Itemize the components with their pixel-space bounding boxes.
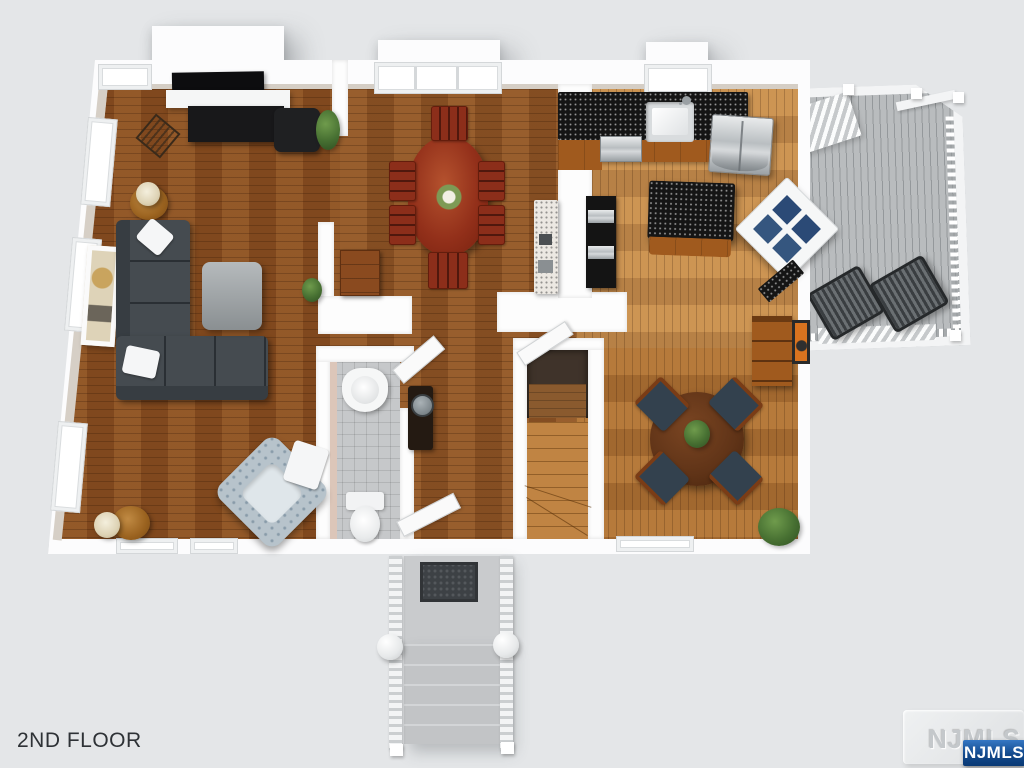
dining-chair-south [428, 252, 468, 289]
rail-post-cap-right [501, 742, 514, 754]
counter-item-1 [539, 234, 552, 245]
hutch-pane-3 [753, 214, 783, 244]
bathroom-wall-top [316, 346, 414, 362]
kitchen-cabinet-left-leg [558, 140, 602, 170]
hutch-pane-4 [772, 233, 802, 263]
island-base [649, 237, 732, 258]
dining-chair-west-1 [389, 161, 416, 201]
divider-wall-horizontal [318, 296, 412, 334]
toilet-bowl [350, 506, 380, 542]
dining-chair-east-2 [478, 205, 505, 245]
refrigerator [708, 114, 774, 176]
ball-finial-right [493, 632, 519, 658]
deck-post-cap-2 [911, 88, 922, 99]
deck-post-cap-1 [843, 84, 854, 95]
range-handle-2 [588, 246, 614, 259]
winder-line-1 [525, 485, 592, 508]
table-lamp-1 [136, 182, 160, 206]
hutch-pane-2 [791, 214, 821, 244]
kitchen-island [647, 181, 736, 258]
table-lamp-2 [94, 512, 120, 538]
fireside-lounge [274, 108, 320, 152]
dining-chair-west-2 [389, 205, 416, 245]
kitchen-sink [646, 102, 694, 142]
island-top [647, 181, 735, 242]
flower-centerpiece [434, 182, 464, 212]
nook-potted-plant [758, 508, 800, 546]
window-top-dining [374, 62, 502, 94]
hall-mirror [411, 394, 434, 417]
nook-wall-art [792, 320, 810, 364]
window-bottom-2 [190, 538, 238, 554]
dining-sideboard [340, 250, 380, 296]
window-bottom-1 [116, 538, 178, 554]
divider-plant [302, 278, 322, 302]
floor-label: 2ND FLOOR [17, 729, 142, 753]
dining-chair-east-1 [478, 161, 505, 201]
sink-bowl [652, 108, 688, 135]
nook-table-plant [684, 420, 710, 448]
staircase-down [527, 422, 588, 539]
bathroom-wall-tint [330, 362, 337, 539]
fridge-door-curve [711, 151, 768, 173]
tiled-counter [534, 200, 558, 294]
counter-item-2 [538, 260, 553, 273]
deck-post-cap-4 [950, 330, 961, 341]
floorplan-scene: 2ND FLOOR NJMLS NJMLS [0, 0, 1024, 768]
nook-bookcase [752, 316, 792, 386]
hutch-pane-1 [772, 195, 802, 225]
wall-stairwell-left [513, 338, 527, 539]
front-steps [404, 644, 508, 744]
ball-finial-left [377, 634, 403, 660]
pedestal-sink [342, 368, 388, 412]
closet-shelf [529, 384, 586, 418]
door-mat [420, 562, 478, 602]
rail-post-cap-left [390, 744, 403, 756]
deck-post-cap-3 [953, 92, 964, 103]
window-top-living [98, 64, 152, 90]
faucet [682, 96, 691, 105]
bathroom-wall-left [316, 346, 330, 539]
range-handle-1 [588, 210, 614, 223]
window-bottom-3 [616, 536, 694, 552]
ottoman [202, 262, 262, 330]
fireplace-firebox [188, 106, 284, 142]
fireplace-plant [316, 110, 340, 150]
dining-chair-north [431, 106, 468, 141]
sink-basin [351, 376, 379, 404]
dishwasher [600, 136, 642, 162]
watermark-badge: NJMLS [963, 740, 1024, 766]
wall-stairwell-right [588, 338, 604, 539]
range [586, 196, 616, 288]
